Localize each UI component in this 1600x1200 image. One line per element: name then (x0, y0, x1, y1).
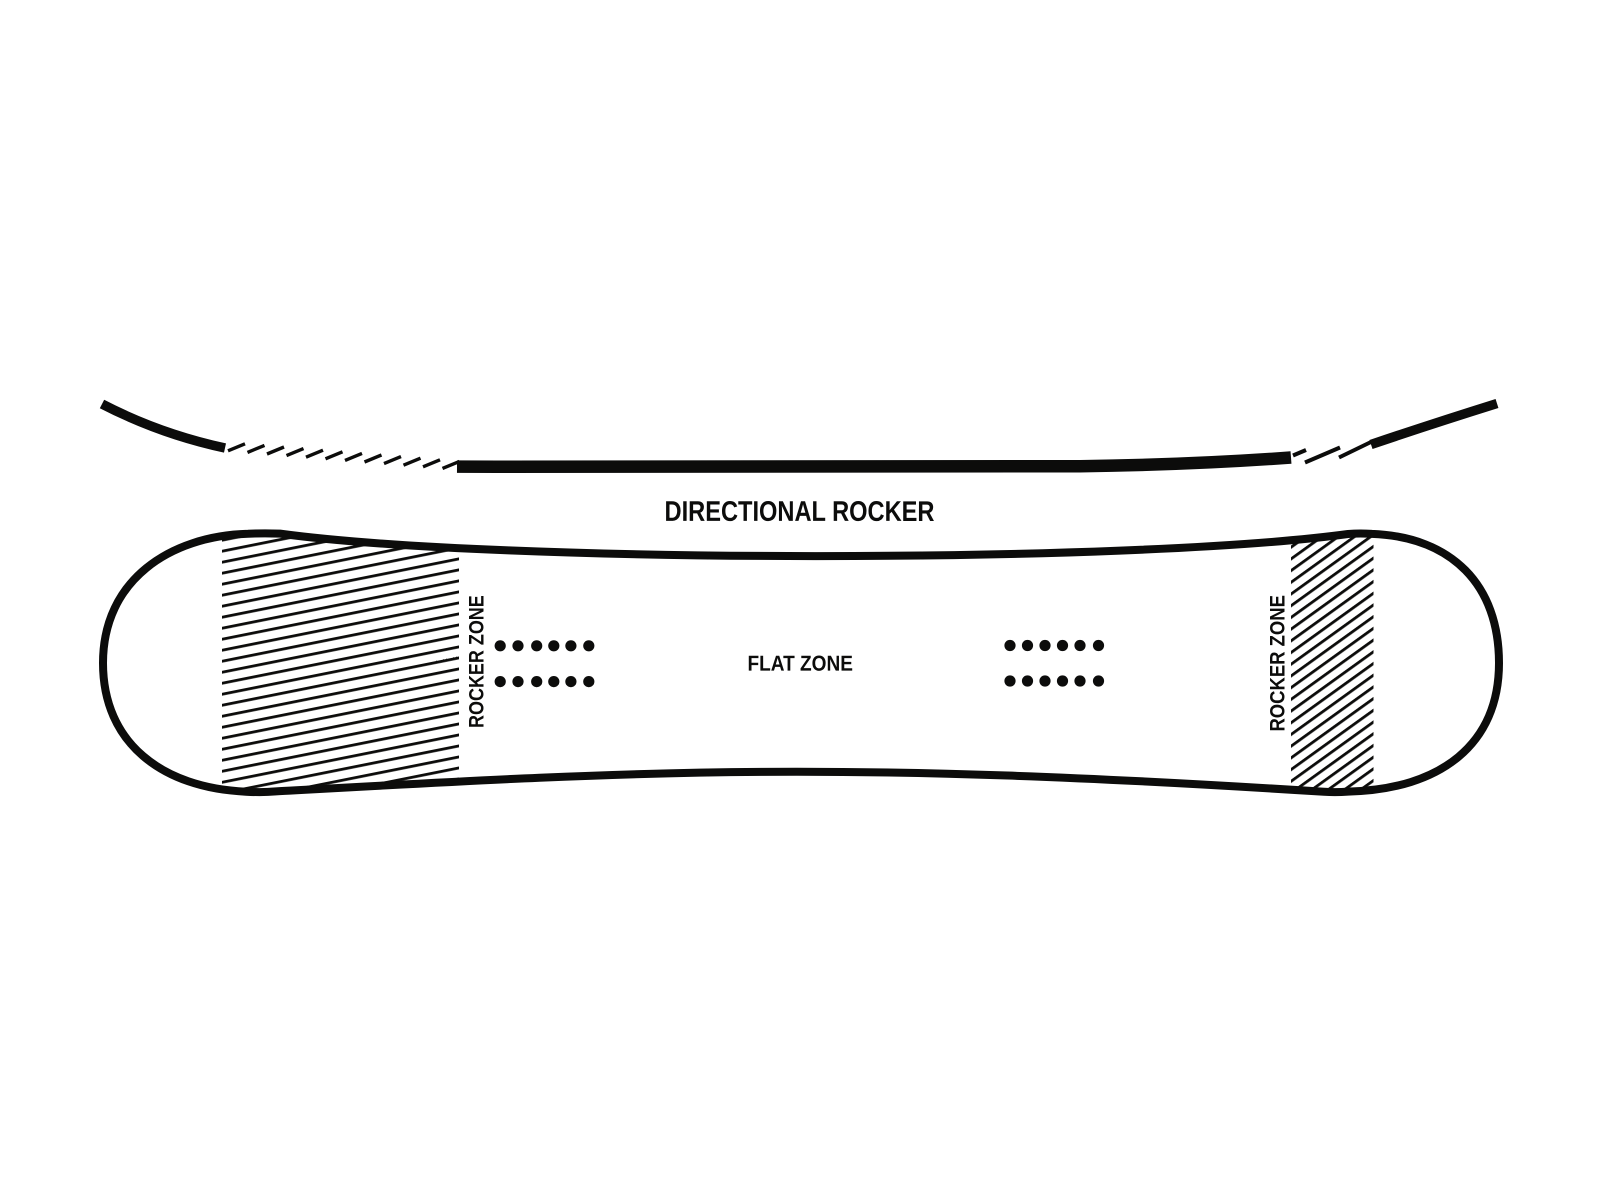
svg-text:ROCKER ZONE: ROCKER ZONE (464, 595, 489, 728)
svg-text:DIRECTIONAL ROCKER: DIRECTIONAL ROCKER (664, 496, 934, 528)
svg-text:ROCKER ZONE: ROCKER ZONE (1265, 595, 1290, 732)
svg-text:FLAT ZONE: FLAT ZONE (747, 651, 852, 676)
